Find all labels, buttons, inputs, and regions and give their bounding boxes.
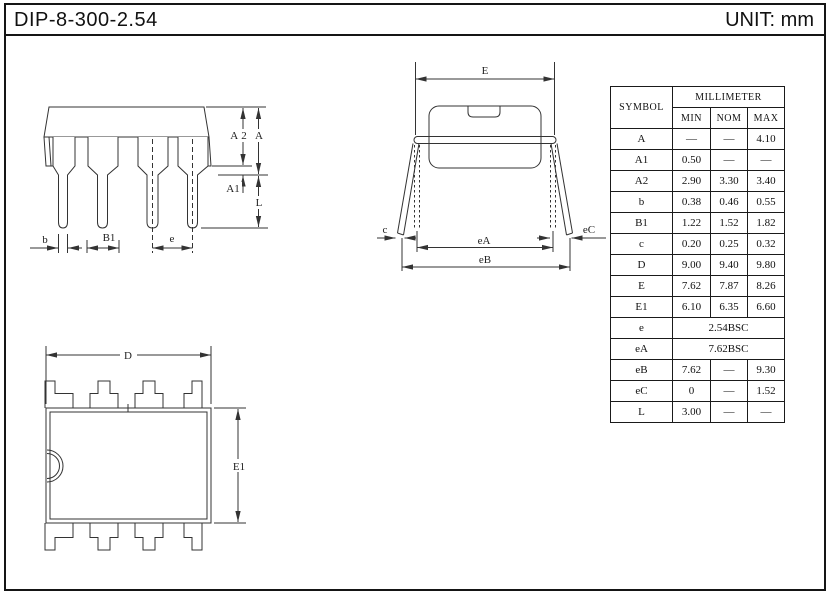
table-row: eB7.62—9.30 [611,360,785,381]
straight-leads-dashed [415,145,556,230]
value-cell: 4.10 [748,129,785,150]
dim-label-a2: A2 [230,130,249,142]
symbol-cell: eB [611,360,673,381]
package-body-end [414,106,556,168]
symbol-cell: A1 [611,150,673,171]
table-row: eC0—1.52 [611,381,785,402]
pins-top-row [45,381,202,408]
table-row: E7.627.878.26 [611,276,785,297]
table-row: L3.00—— [611,402,785,423]
value-cell: — [748,150,785,171]
side-view-drawing: A2 A A1 L b B1 e [18,93,280,265]
value-cell: — [748,402,785,423]
pin [135,381,163,408]
symbol-cell: A [611,129,673,150]
end-view-drawing: E c eC eA eB [372,55,614,290]
extension-lines [59,107,269,253]
dim-label-d: D [124,350,132,362]
value-cell: 3.40 [748,171,785,192]
unit-label: UNIT: mm [725,9,814,32]
dim-label-a: A [255,130,263,142]
pin [45,381,73,408]
millimeter-header-cell: MILLIMETER [673,87,785,108]
value-cell: 9.00 [673,255,711,276]
value-cell: 0.38 [673,192,711,213]
dim-label-l: L [256,197,263,209]
dim-label-eb: eB [479,254,491,266]
value-cell: 8.26 [748,276,785,297]
value-cell: 9.30 [748,360,785,381]
datasheet-page: DIP-8-300-2.54 UNIT: mm [0,0,830,595]
value-cell: 1.22 [673,213,711,234]
pin [88,137,118,228]
top-view-drawing: D E1 [28,340,260,565]
value-cell: — [673,129,711,150]
symbol-cell: b [611,192,673,213]
symbol-cell: eC [611,381,673,402]
dim-label-a1: A1 [226,183,239,195]
title-separator [5,34,825,36]
table-row: c0.200.250.32 [611,234,785,255]
value-cell: 1.82 [748,213,785,234]
pin [53,137,75,228]
pin [135,523,163,550]
dim-label-ea: eA [478,235,491,247]
value-cell: 0.32 [748,234,785,255]
index-notch [468,106,500,117]
dimension-table-body: SYMBOL MILLIMETER MIN NOM MAX A——4.10A10… [611,87,785,423]
merged-value-cell: 2.54BSC [673,318,785,339]
value-cell: 7.87 [711,276,748,297]
value-cell: 0.50 [673,150,711,171]
symbol-cell: L [611,402,673,423]
value-cell: 3.30 [711,171,748,192]
table-row: E16.106.356.60 [611,297,785,318]
value-cell: — [711,129,748,150]
value-cell: — [711,402,748,423]
dim-label-c: c [383,224,388,236]
value-cell: 0.46 [711,192,748,213]
table-row: eA7.62BSC [611,339,785,360]
dim-label-b: b [42,234,48,246]
table-row: B11.221.521.82 [611,213,785,234]
pin [45,523,73,550]
value-cell: 0.20 [673,234,711,255]
page-title: DIP-8-300-2.54 [14,9,158,32]
value-cell: 0.55 [748,192,785,213]
table-row: A22.903.303.40 [611,171,785,192]
dim-label-e-width: E [482,65,489,77]
pin [184,523,202,550]
value-cell: 1.52 [748,381,785,402]
symbol-cell: E [611,276,673,297]
symbol-cell: e [611,318,673,339]
pin [90,381,118,408]
nom-header-cell: NOM [711,108,748,129]
value-cell: 3.00 [673,402,711,423]
dim-label-ec: eC [583,224,595,236]
table-row: A10.50—— [611,150,785,171]
symbol-cell: c [611,234,673,255]
value-cell: 0.25 [711,234,748,255]
pin [90,523,118,550]
value-cell: 9.40 [711,255,748,276]
value-cell: 6.60 [748,297,785,318]
package-pins-side [53,137,208,228]
value-cell: 6.35 [711,297,748,318]
merged-value-cell: 7.62BSC [673,339,785,360]
min-header-cell: MIN [673,108,711,129]
dim-label-e-pitch: e [170,233,175,245]
value-cell: 6.10 [673,297,711,318]
value-cell: 1.52 [711,213,748,234]
value-cell: — [711,360,748,381]
table-row: b0.380.460.55 [611,192,785,213]
value-cell: 9.80 [748,255,785,276]
base-flange [414,137,556,144]
symbol-cell: eA [611,339,673,360]
symbol-cell: B1 [611,213,673,234]
dimension-lines [377,79,606,267]
pin [184,381,202,408]
value-cell: 2.90 [673,171,711,192]
table-row: A——4.10 [611,129,785,150]
value-cell: 0 [673,381,711,402]
dim-label-e1: E1 [233,461,245,473]
value-cell: — [711,381,748,402]
value-cell: — [711,150,748,171]
dim-label-b1: B1 [103,232,116,244]
max-header-cell: MAX [748,108,785,129]
symbol-cell: D [611,255,673,276]
symbol-cell: A2 [611,171,673,192]
symbol-header-cell: SYMBOL [611,87,673,129]
splayed-leads [398,144,573,236]
symbol-cell: E1 [611,297,673,318]
table-row: D9.009.409.80 [611,255,785,276]
dimension-table: SYMBOL MILLIMETER MIN NOM MAX A——4.10A10… [610,86,785,423]
value-cell: 7.62 [673,276,711,297]
table-row: e2.54BSC [611,318,785,339]
value-cell: 7.62 [673,360,711,381]
package-body-top [46,404,211,523]
pins-bottom-row [45,523,202,550]
